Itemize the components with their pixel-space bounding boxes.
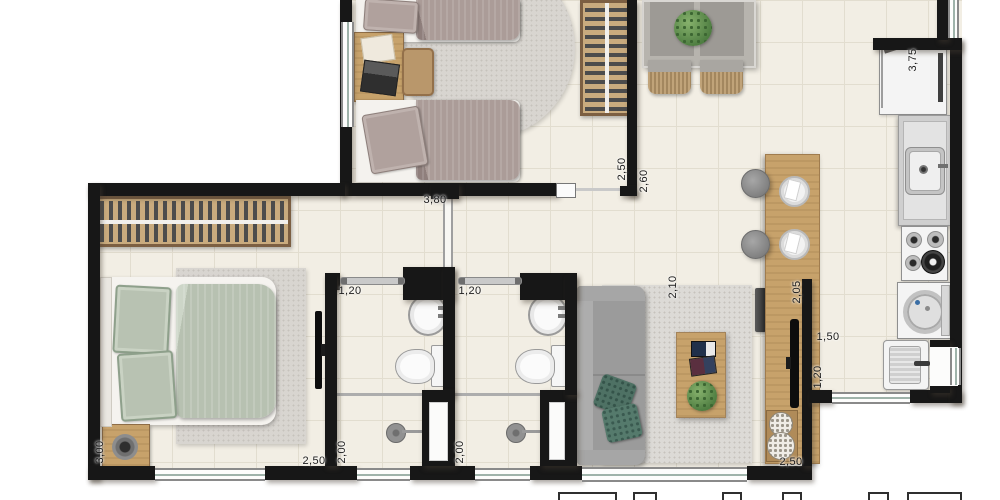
wall: [937, 0, 948, 40]
tv-stand: [786, 357, 791, 369]
counter-tv: [790, 319, 799, 408]
window-service: [832, 392, 910, 404]
partition: [443, 199, 453, 269]
laptop: [360, 60, 400, 97]
double-bed-headboard: [100, 277, 112, 427]
burner: [927, 231, 944, 248]
wall: [809, 390, 832, 403]
dining-centerpiece-plant: [674, 10, 712, 46]
dimension-label: 2,00: [336, 440, 348, 463]
shower-head: [506, 423, 526, 443]
shower-head: [386, 423, 406, 443]
sink-drain: [919, 165, 928, 174]
dimension-label: 2,50: [779, 456, 802, 468]
dimension-label: 1,20: [812, 365, 824, 388]
wall: [747, 466, 812, 480]
sofa-backrest: [577, 286, 593, 465]
sliding-door-living: [582, 467, 747, 482]
dimension-label: 1,50: [816, 331, 839, 343]
desk-chair: [402, 48, 434, 96]
dimension-label: 3,00: [94, 440, 106, 463]
wall: [88, 183, 345, 196]
wall: [265, 466, 357, 480]
window-bedroom2: [341, 22, 354, 127]
single-bed-top-duvet: [416, 0, 520, 40]
dimension-label: 2,60: [638, 169, 650, 192]
washer-drum-dot: [915, 300, 920, 305]
double-bed-duvet: [176, 284, 276, 418]
dimension-label: 2,50: [616, 157, 628, 180]
toilet-bowl: [395, 349, 435, 384]
wall: [802, 279, 812, 466]
sofa-armrest: [577, 286, 645, 301]
wall: [410, 466, 475, 480]
wall: [88, 466, 155, 480]
bath1-sliding-door: [340, 277, 405, 285]
dimension-label: 1,20: [458, 285, 481, 297]
wall: [620, 186, 637, 196]
wall: [627, 0, 637, 196]
tv-mount: [321, 344, 325, 356]
wall: [530, 466, 582, 480]
dimension-label: 2,05: [791, 280, 803, 303]
wardrobe-master: [95, 196, 291, 247]
tub-tap: [914, 361, 930, 366]
shower-glass: [455, 393, 540, 396]
facade-element: [868, 492, 889, 500]
sink-faucet: [938, 164, 948, 168]
washer-panel: [941, 285, 950, 336]
washer-drum-dot: [925, 306, 930, 311]
wall: [930, 385, 950, 393]
door-leaf-bedroom2: [556, 183, 576, 198]
table-lamp: [112, 434, 138, 460]
dining-chair: [700, 60, 743, 94]
pillow: [117, 350, 178, 422]
sofa-cushion-split: [593, 374, 645, 376]
bar-stool: [741, 169, 770, 198]
coffee-table-plant: [687, 381, 717, 411]
wall: [88, 183, 100, 480]
single-bed-bottom-duvet: [416, 100, 520, 180]
window-bath2: [475, 468, 530, 481]
sofa-armrest: [577, 450, 645, 465]
dimension-label: 3,75: [907, 48, 919, 71]
window-kitchen-top: [948, 0, 959, 38]
niche: [429, 402, 448, 461]
fridge-hinge: [938, 53, 943, 102]
facade-element: [782, 492, 802, 500]
dimension-label: 2,50: [302, 455, 325, 467]
wall: [565, 275, 577, 395]
dimension-label: 3,80: [423, 194, 446, 206]
pillow: [112, 285, 171, 356]
window-laundry: [950, 348, 961, 385]
shower-glass: [337, 393, 422, 396]
pillow: [363, 0, 419, 34]
burner: [905, 255, 921, 271]
fridge-door: [881, 50, 883, 108]
bar-stool: [741, 230, 770, 259]
facade-element: [907, 492, 962, 500]
dimension-label: 2,10: [667, 275, 679, 298]
window-bath1: [357, 468, 410, 481]
niche: [549, 402, 565, 460]
burner: [906, 232, 922, 248]
dimension-label: 2,00: [454, 440, 466, 463]
bath2-sliding-door: [458, 277, 522, 285]
wardrobe-bedroom2: [580, 0, 634, 116]
wall: [443, 267, 455, 397]
pillow: [361, 105, 429, 174]
facade-element: [558, 492, 617, 500]
magazine: [689, 355, 717, 376]
dining-chair: [648, 60, 691, 94]
toilet-bowl: [515, 349, 555, 384]
dimension-label: 1,20: [338, 285, 361, 297]
door-threshold: [574, 188, 620, 191]
wall: [325, 275, 337, 466]
facade-element: [633, 492, 657, 500]
facade-element: [722, 492, 742, 500]
window-master: [155, 468, 265, 481]
floor-plan: 3,80 2,50 2,60 3,75 1,20 1,20 2,10 2,05 …: [0, 0, 1000, 500]
burner-large: [921, 250, 945, 274]
